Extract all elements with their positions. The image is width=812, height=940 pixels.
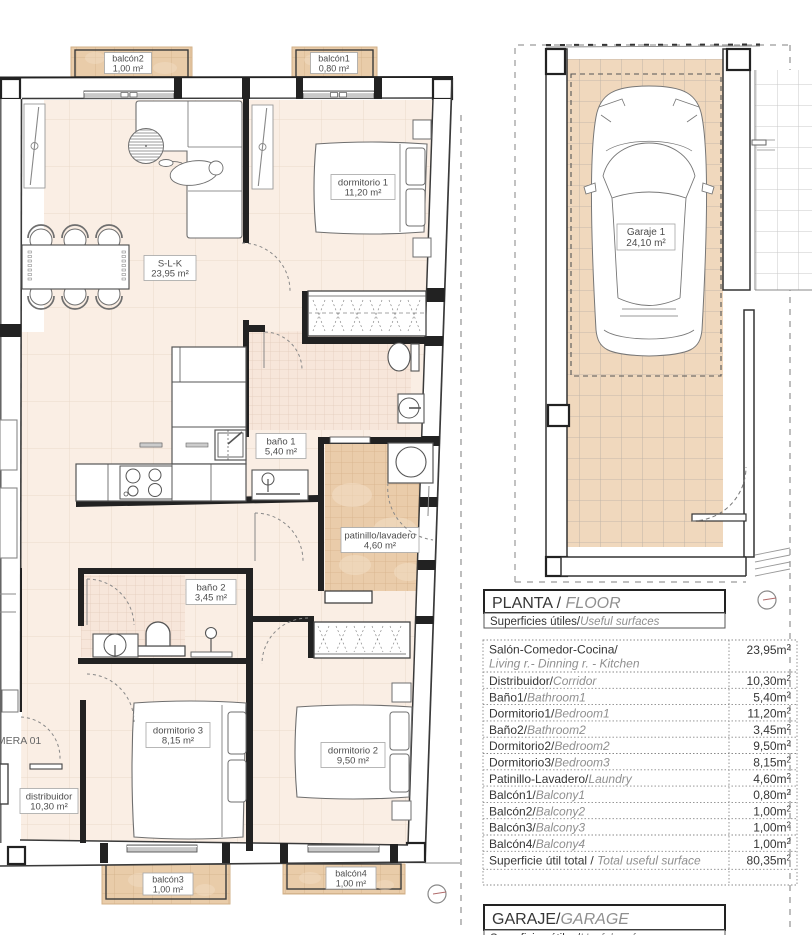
svg-text:Garaje 1: Garaje 1 [627, 227, 666, 238]
svg-text:11,20m2: 11,20m2 [747, 707, 791, 721]
svg-text:balcón1: balcón1 [318, 53, 350, 63]
svg-text:PLANTA / FLOOR: PLANTA / FLOOR [492, 595, 621, 612]
svg-text:distribuidor: distribuidor [26, 791, 72, 802]
svg-text:0,80m2: 0,80m2 [753, 788, 791, 802]
svg-text:GARAJE/GARAGE: GARAJE/GARAGE [492, 911, 629, 928]
svg-text:baño 1: baño 1 [266, 436, 295, 447]
svg-text:Dormitorio1/Bedroom1: Dormitorio1/Bedroom1 [489, 707, 610, 721]
svg-text:9,50m2: 9,50m2 [753, 739, 791, 753]
svg-text:Living r.- Dinning r. - Kitche: Living r.- Dinning r. - Kitchen [489, 657, 640, 671]
svg-text:4,60m2: 4,60m2 [753, 772, 791, 786]
svg-text:Superficies útiles/Useful surf: Superficies útiles/Useful surfaces [490, 616, 660, 628]
svg-text:Dormitorio3/Bedroom3: Dormitorio3/Bedroom3 [489, 756, 610, 770]
svg-text:Balcón4/Balcony4: Balcón4/Balcony4 [489, 837, 585, 851]
svg-text:5,40 m²: 5,40 m² [265, 447, 297, 458]
svg-text:10,30 m²: 10,30 m² [30, 802, 68, 813]
svg-text:3,45 m²: 3,45 m² [195, 593, 227, 604]
svg-text:10,30m2: 10,30m2 [747, 674, 792, 688]
svg-text:patinillo/lavadero: patinillo/lavadero [344, 530, 415, 541]
svg-text:1,00m2: 1,00m2 [753, 804, 791, 818]
svg-text:23,95 m²: 23,95 m² [151, 269, 189, 280]
svg-text:1,00 m²: 1,00 m² [153, 884, 184, 894]
svg-text:80,35m2: 80,35m2 [747, 853, 792, 867]
svg-text:3,45m2: 3,45m2 [753, 723, 791, 737]
svg-text:Salón-Comedor-Cocina/: Salón-Comedor-Cocina/ [489, 643, 618, 657]
svg-text:dormitorio 2: dormitorio 2 [328, 745, 378, 756]
svg-text:23,95m2: 23,95m2 [747, 643, 792, 657]
svg-text:Distribuidor/Corridor: Distribuidor/Corridor [489, 674, 597, 688]
svg-text:8,15 m²: 8,15 m² [162, 736, 194, 747]
svg-text:Baño1/Bathroom1: Baño1/Bathroom1 [489, 690, 586, 704]
svg-text:4,60 m²: 4,60 m² [364, 541, 396, 552]
svg-text:11,20 m²: 11,20 m² [345, 188, 382, 199]
svg-text:balcón2: balcón2 [112, 53, 144, 63]
svg-text:dormitorio 1: dormitorio 1 [338, 177, 388, 188]
svg-text:Superficie útil total / Total: Superficie útil total / Total useful sur… [489, 853, 701, 867]
svg-text:Balcón1/Balcony1: Balcón1/Balcony1 [489, 788, 585, 802]
svg-text:Patinillo-Lavadero/Laundry: Patinillo-Lavadero/Laundry [489, 772, 633, 786]
svg-text:Balcón3/Balcony3: Balcón3/Balcony3 [489, 821, 585, 835]
svg-text:dormitorio 3: dormitorio 3 [153, 725, 203, 736]
svg-text:5,40m2: 5,40m2 [753, 690, 791, 704]
svg-text:1,00 m²: 1,00 m² [113, 63, 144, 73]
svg-text:Baño2/Bathroom2: Baño2/Bathroom2 [489, 723, 586, 737]
svg-text:0,80 m²: 0,80 m² [319, 63, 350, 73]
svg-text:1,00 m²: 1,00 m² [336, 878, 367, 888]
svg-text:1,00m2: 1,00m2 [753, 837, 791, 851]
svg-text:1,00m2: 1,00m2 [753, 821, 791, 835]
svg-text:8,15m2: 8,15m2 [753, 756, 791, 770]
svg-text:9,50 m²: 9,50 m² [337, 756, 369, 767]
svg-text:S-L-K: S-L-K [158, 258, 183, 269]
svg-text:balcón3: balcón3 [152, 874, 184, 884]
svg-text:IMERA 01: IMERA 01 [0, 735, 41, 747]
svg-text:baño 2: baño 2 [196, 582, 225, 593]
svg-text:Balcón2/Balcony2: Balcón2/Balcony2 [489, 804, 585, 818]
svg-text:Dormitorio2/Bedroom2: Dormitorio2/Bedroom2 [489, 739, 610, 753]
svg-text:balcón4: balcón4 [335, 868, 367, 878]
svg-text:24,10 m²: 24,10 m² [626, 238, 666, 249]
